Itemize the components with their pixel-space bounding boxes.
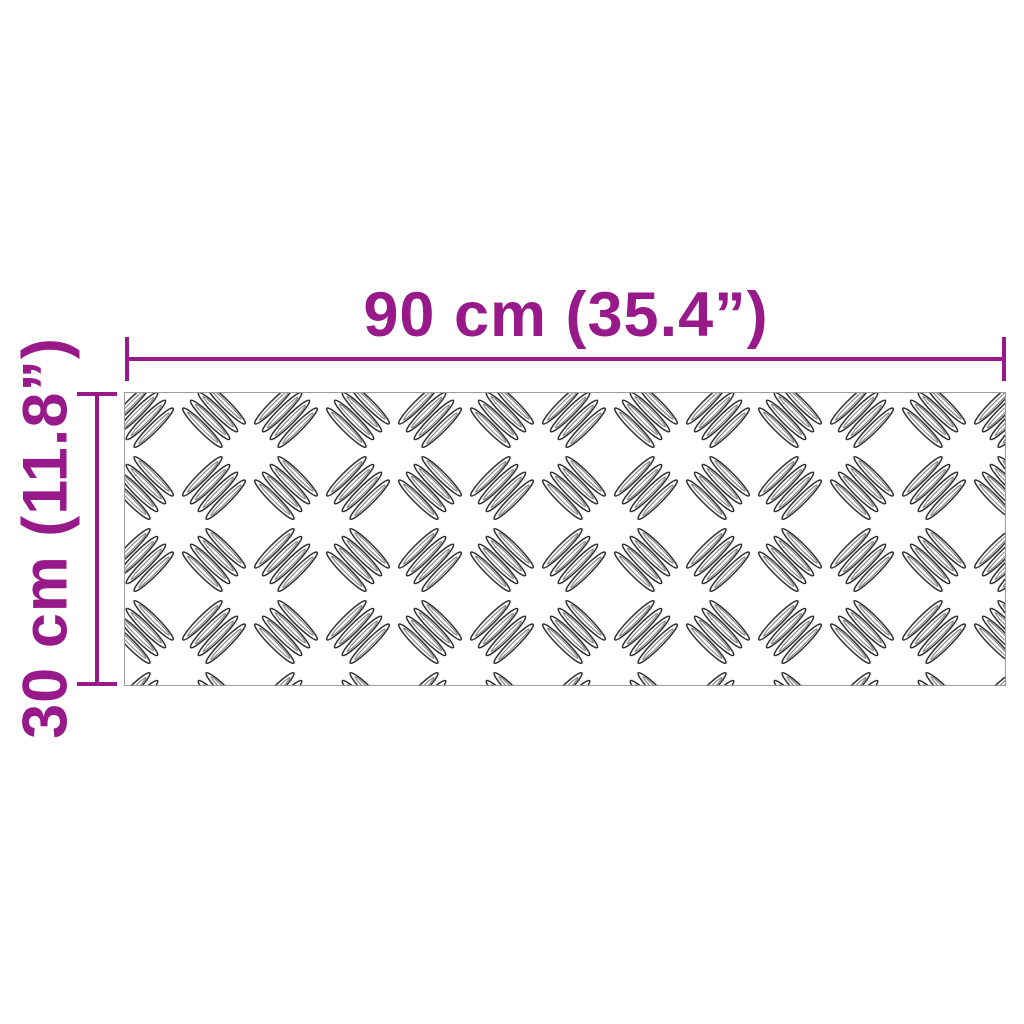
width-dimension-tick-left [125,337,129,381]
height-dimension-tick-bottom [77,682,117,686]
checker-plate-svg [124,392,1006,686]
dimension-diagram: 90 cm (35.4”) 30 cm (11.8”) [0,0,1024,1024]
width-dimension-tick-right [1002,337,1006,381]
width-dimension-line [125,357,1006,361]
height-dimension-line [95,392,99,686]
height-dimension-tick-top [77,392,117,396]
height-dimension-label: 30 cm (11.8”) [15,337,78,739]
width-dimension-label: 90 cm (35.4”) [363,284,768,347]
checker-plate-image [124,392,1006,686]
